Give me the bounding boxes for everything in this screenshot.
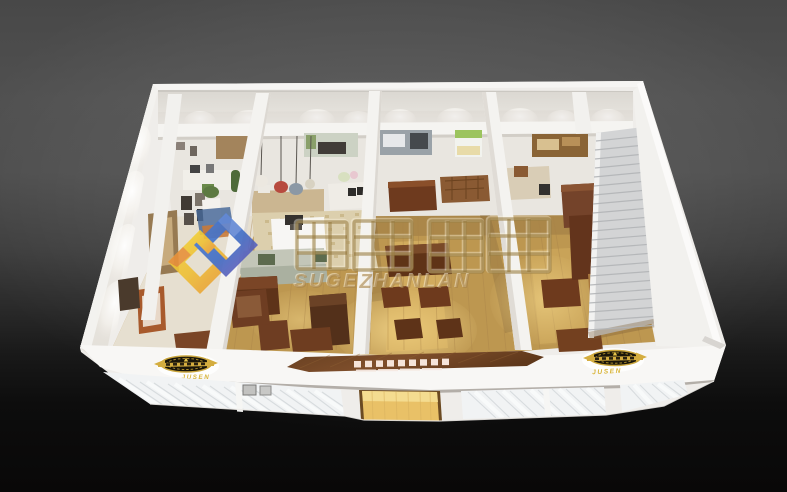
svg-text:SUGEZHANLAN: SUGEZHANLAN xyxy=(294,271,472,293)
